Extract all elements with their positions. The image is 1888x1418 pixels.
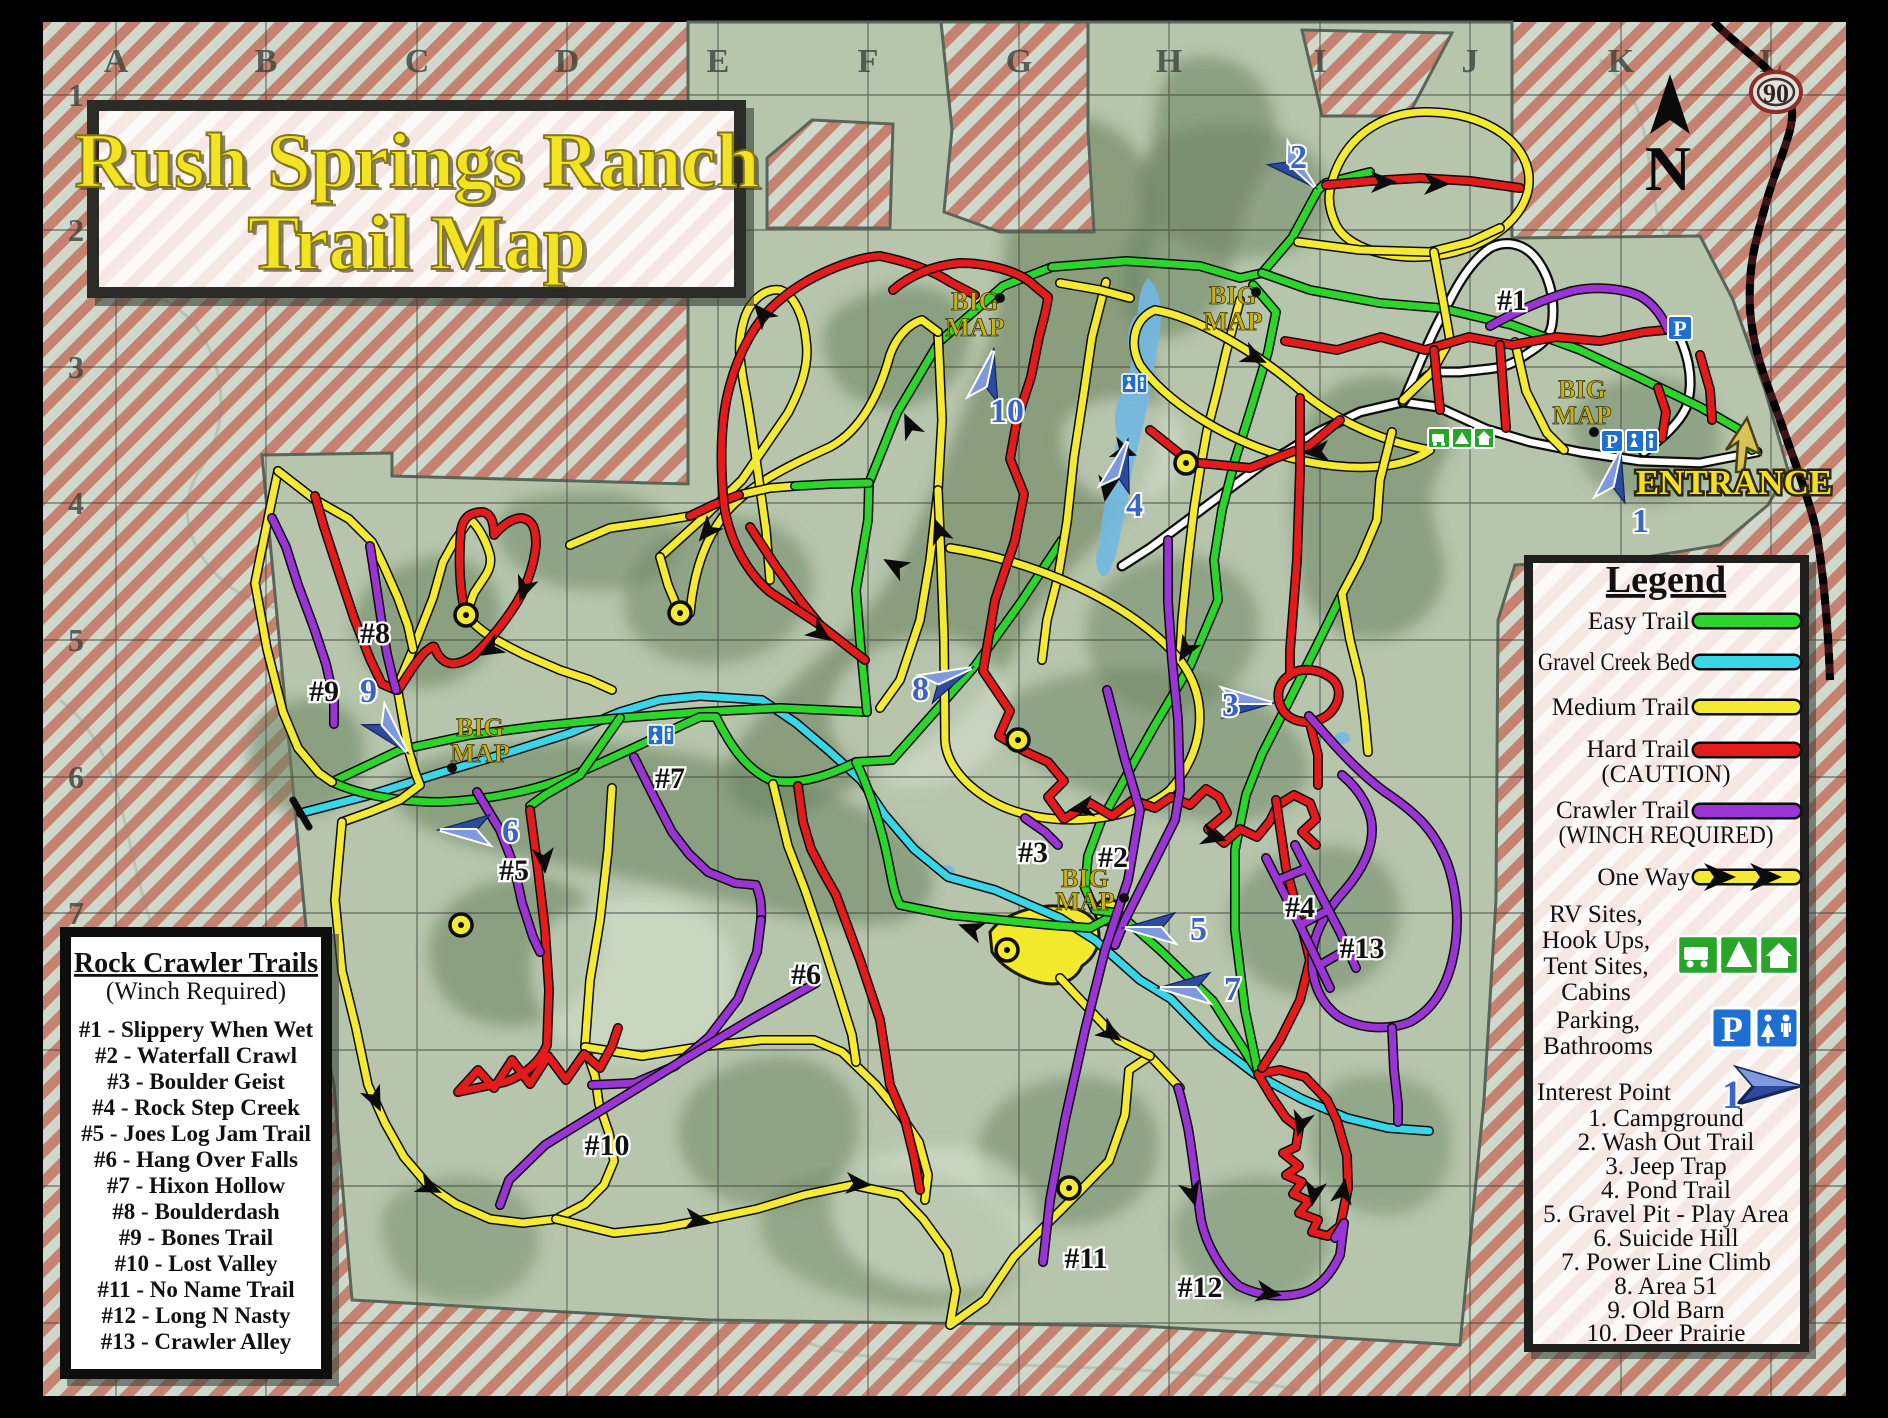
svg-text:BIG: BIG xyxy=(1558,375,1606,404)
svg-text:Tent Sites,: Tent Sites, xyxy=(1543,953,1648,980)
svg-text:#12 - Long N Nasty: #12 - Long N Nasty xyxy=(101,1303,291,1328)
svg-text:1: 1 xyxy=(68,77,84,113)
svg-text:6. Suicide Hill: 6. Suicide Hill xyxy=(1593,1225,1738,1252)
svg-text:2: 2 xyxy=(1290,139,1307,176)
svg-text:7: 7 xyxy=(1224,971,1241,1008)
svg-text:BIG: BIG xyxy=(951,287,999,316)
svg-text:#11: #11 xyxy=(1064,1242,1107,1275)
svg-text:4: 4 xyxy=(68,485,84,521)
svg-text:7: 7 xyxy=(68,895,84,931)
svg-text:8: 8 xyxy=(912,671,929,708)
svg-text:90: 90 xyxy=(1763,79,1789,108)
svg-text:MAP: MAP xyxy=(945,313,1004,342)
svg-text:#12: #12 xyxy=(1178,1271,1223,1304)
svg-text:RV Sites,: RV Sites, xyxy=(1549,901,1642,928)
svg-text:Easy Trail: Easy Trail xyxy=(1588,608,1690,635)
svg-text:#13 - Crawler Alley: #13 - Crawler Alley xyxy=(101,1329,292,1354)
svg-text:Medium Trail: Medium Trail xyxy=(1552,694,1690,721)
svg-text:(Winch Required): (Winch Required) xyxy=(106,978,286,1005)
svg-text:Gravel Creek Bed: Gravel Creek Bed xyxy=(1538,649,1690,676)
svg-text:3: 3 xyxy=(68,349,84,385)
svg-text:1. Campground: 1. Campground xyxy=(1588,1105,1744,1132)
svg-text:2: 2 xyxy=(68,212,84,248)
svg-text:Cabins: Cabins xyxy=(1561,979,1630,1006)
svg-text:10: 10 xyxy=(990,393,1024,430)
svg-text:2. Wash Out Trail: 2. Wash Out Trail xyxy=(1578,1129,1755,1156)
svg-text:#13: #13 xyxy=(1340,932,1385,965)
svg-text:#6: #6 xyxy=(791,958,821,991)
svg-text:3. Jeep Trap: 3. Jeep Trap xyxy=(1605,1153,1727,1180)
svg-text:Rush Springs Ranch: Rush Springs Ranch xyxy=(75,117,760,204)
svg-text:Hook Ups,: Hook Ups, xyxy=(1542,927,1650,954)
svg-text:MAP: MAP xyxy=(1055,887,1114,916)
svg-text:#10: #10 xyxy=(585,1129,630,1162)
svg-text:#5: #5 xyxy=(499,854,529,887)
svg-text:1: 1 xyxy=(1632,503,1649,540)
svg-text:8. Area 51: 8. Area 51 xyxy=(1614,1273,1717,1300)
svg-text:6: 6 xyxy=(502,813,519,850)
svg-text:#3: #3 xyxy=(1018,836,1048,869)
svg-text:One Way: One Way xyxy=(1597,864,1690,891)
svg-text:9: 9 xyxy=(360,673,377,710)
svg-text:E: E xyxy=(707,43,730,80)
svg-text:H: H xyxy=(1156,43,1182,80)
svg-text:#8: #8 xyxy=(360,617,390,650)
svg-text:#1 - Slippery When Wet: #1 - Slippery When Wet xyxy=(79,1017,314,1042)
svg-text:Crawler Trail: Crawler Trail xyxy=(1556,797,1690,824)
svg-text:#7: #7 xyxy=(655,762,685,795)
svg-text:MAP: MAP xyxy=(1552,401,1611,430)
svg-text:B: B xyxy=(255,43,278,80)
svg-text:#7 - Hixon Hollow: #7 - Hixon Hollow xyxy=(107,1173,286,1198)
svg-text:F: F xyxy=(858,43,879,80)
svg-text:K: K xyxy=(1608,43,1635,80)
svg-text:(WINCH REQUIRED): (WINCH REQUIRED) xyxy=(1559,822,1774,849)
svg-text:P: P xyxy=(1606,431,1618,453)
svg-text:#3 - Boulder Geist: #3 - Boulder Geist xyxy=(107,1069,285,1094)
svg-text:C: C xyxy=(405,43,430,80)
svg-text:N: N xyxy=(1645,133,1691,204)
svg-text:#11 - No Name Trail: #11 - No Name Trail xyxy=(97,1277,294,1302)
svg-text:Interest Point: Interest Point xyxy=(1537,1079,1671,1106)
svg-text:#6 - Hang Over Falls: #6 - Hang Over Falls xyxy=(94,1147,298,1172)
svg-text:3: 3 xyxy=(1222,687,1239,724)
svg-text:Hard Trail: Hard Trail xyxy=(1587,736,1691,763)
svg-text:7. Power Line Climb: 7. Power Line Climb xyxy=(1561,1249,1771,1276)
svg-text:I: I xyxy=(1313,43,1326,80)
svg-text:#1: #1 xyxy=(1497,284,1527,317)
svg-text:#2 - Waterfall Crawl: #2 - Waterfall Crawl xyxy=(95,1043,297,1068)
svg-text:BIG: BIG xyxy=(1209,281,1257,310)
svg-text:Trail Map: Trail Map xyxy=(248,199,587,286)
svg-text:5: 5 xyxy=(68,622,84,658)
svg-text:P: P xyxy=(1721,1009,1743,1049)
svg-text:D: D xyxy=(555,43,580,80)
svg-text:#9 - Bones Trail: #9 - Bones Trail xyxy=(119,1225,273,1250)
svg-text:10. Deer Prairie: 10. Deer Prairie xyxy=(1587,1320,1746,1347)
svg-text:Rock Crawler Trails: Rock Crawler Trails xyxy=(74,948,318,979)
svg-text:5: 5 xyxy=(1190,911,1207,948)
svg-text:#2: #2 xyxy=(1098,841,1128,874)
svg-text:#4 - Rock Step Creek: #4 - Rock Step Creek xyxy=(92,1095,300,1120)
svg-text:MAP: MAP xyxy=(450,739,509,768)
svg-text:ENTRANCE: ENTRANCE xyxy=(1636,463,1832,502)
svg-text:#4: #4 xyxy=(1285,891,1315,924)
svg-text:Parking,: Parking, xyxy=(1556,1007,1640,1034)
svg-text:P: P xyxy=(1673,316,1686,341)
svg-text:BIG: BIG xyxy=(456,713,504,742)
svg-text:#5 - Joes Log Jam Trail: #5 - Joes Log Jam Trail xyxy=(81,1121,311,1146)
svg-text:(CAUTION): (CAUTION) xyxy=(1601,761,1730,788)
svg-text:A: A xyxy=(104,43,129,80)
svg-text:Legend: Legend xyxy=(1606,559,1726,601)
svg-text:#10 - Lost Valley: #10 - Lost Valley xyxy=(115,1251,278,1276)
svg-text:#8 - Boulderdash: #8 - Boulderdash xyxy=(112,1199,280,1224)
svg-text:4. Pond Trail: 4. Pond Trail xyxy=(1601,1177,1731,1204)
svg-text:Bathrooms: Bathrooms xyxy=(1543,1033,1653,1060)
svg-text:G: G xyxy=(1006,43,1032,80)
svg-text:J: J xyxy=(1462,43,1479,80)
svg-text:MAP: MAP xyxy=(1203,307,1262,336)
svg-text:#9: #9 xyxy=(309,675,339,708)
svg-text:4: 4 xyxy=(1126,487,1143,524)
svg-text:5. Gravel Pit - Play Area: 5. Gravel Pit - Play Area xyxy=(1543,1201,1789,1228)
svg-text:6: 6 xyxy=(68,759,84,795)
